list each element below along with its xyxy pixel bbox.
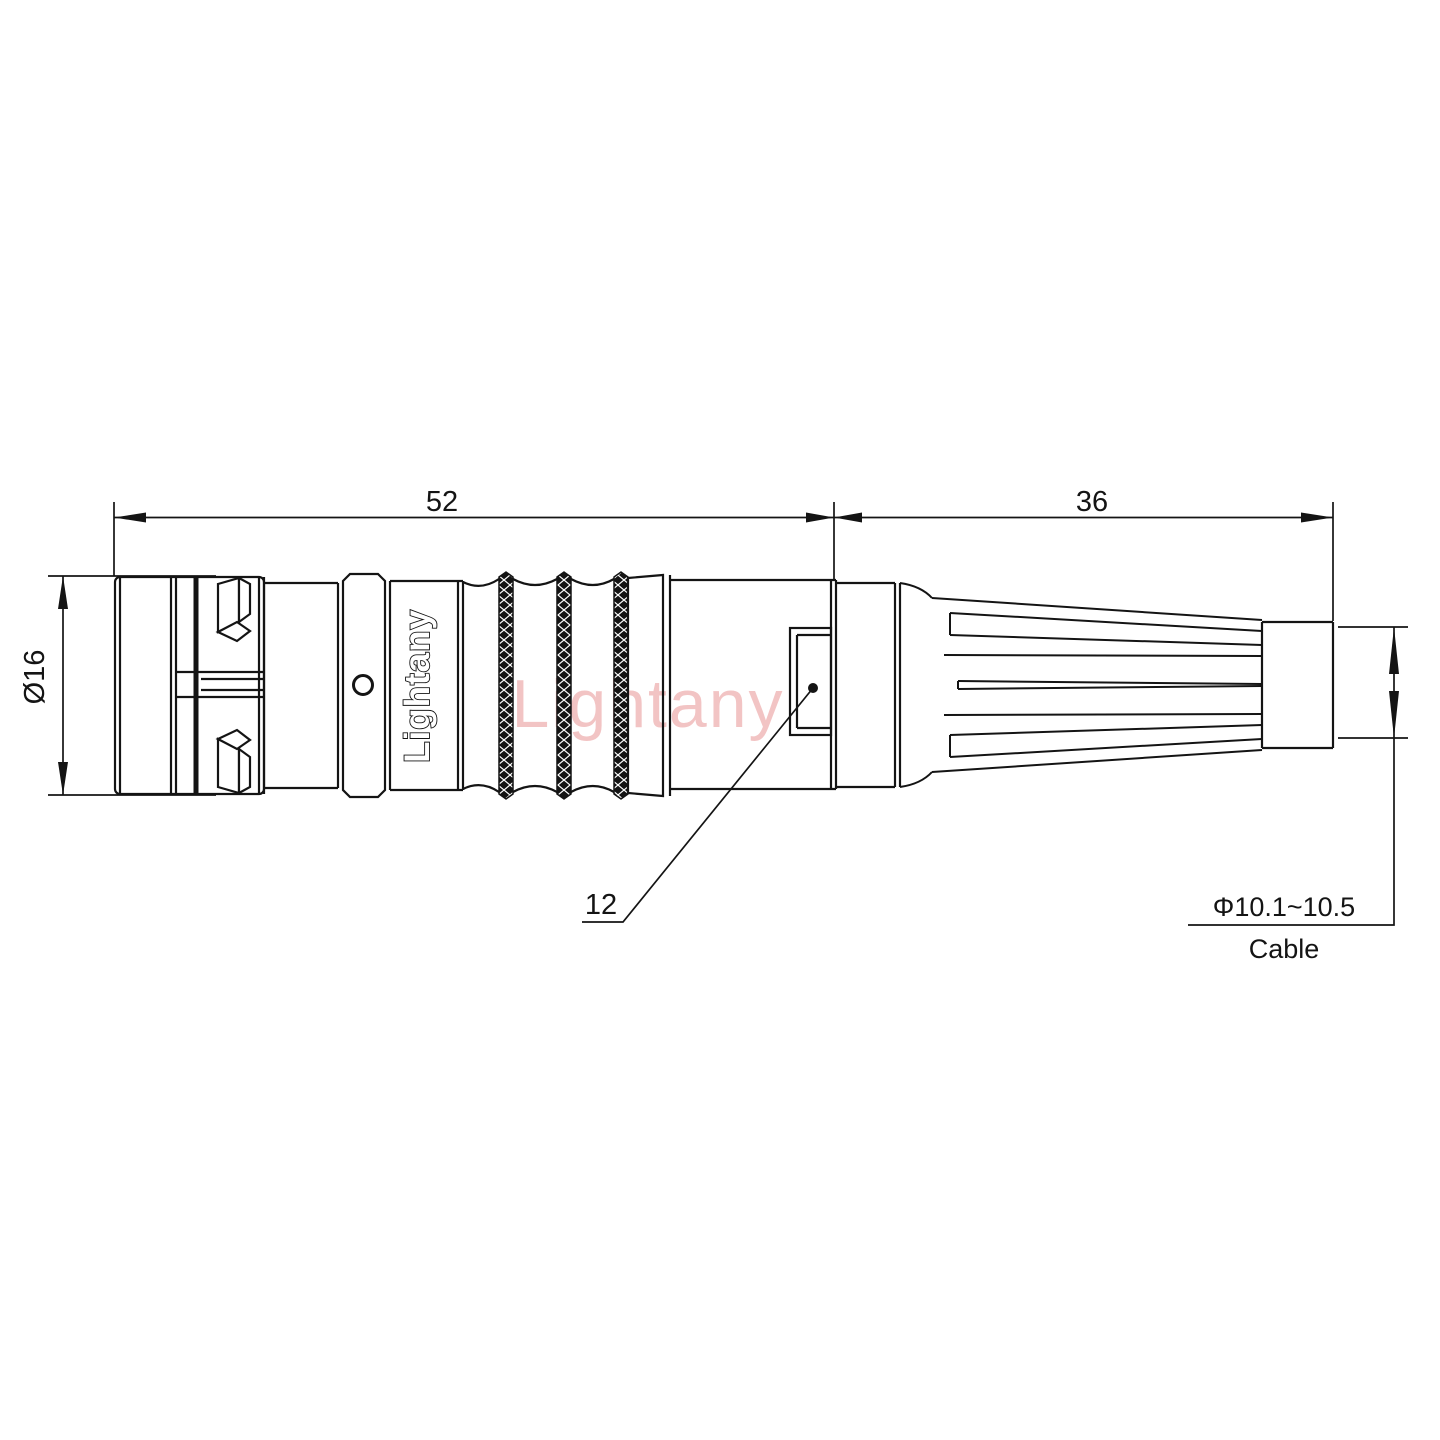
watermark-text: Lightany [511,666,784,742]
arrowhead-mid-left [834,513,862,523]
bottom-latch-tab [218,730,250,793]
cable-label: Cable [1249,934,1320,964]
knurl-band-1 [499,572,513,799]
arrowhead-left [114,513,146,523]
arrowhead-right [1301,513,1333,523]
dimension-nut-size-label: 12 [585,889,617,921]
length-dimensions [114,502,1333,621]
dimension-cable-diameter-label: Φ10.1~10.5 [1213,892,1355,922]
technical-drawing-canvas: Lightany [0,0,1440,1440]
dimension-front-length-label: 52 [426,486,458,518]
back-cap [836,583,900,787]
arrowhead-cable-up [1389,627,1399,674]
coupling-collar [343,574,385,797]
cable-entry [1262,622,1333,748]
collar-hole [354,676,373,695]
body-brand-label: Lightany [398,609,437,763]
strain-relief-fins [900,583,1262,787]
keyway-window [790,628,831,735]
arrowhead-down [58,762,68,795]
front-release-sleeve [115,577,264,794]
cable-diameter-dimension [1188,627,1408,925]
top-latch-tab [218,578,250,641]
front-diameter-dimension [48,576,216,795]
dimension-front-diameter-label: Ø16 [19,650,51,705]
mid-barrel [264,583,338,788]
arrowhead-up [58,576,68,609]
arrowhead-mid-right [806,513,834,523]
arrowhead-cable-down [1389,691,1399,738]
knurl-band-2 [557,572,571,799]
knurl-band-3 [614,572,628,799]
drawing-page: Lightany [0,0,1440,1440]
dimension-rear-length-label: 36 [1076,486,1108,518]
